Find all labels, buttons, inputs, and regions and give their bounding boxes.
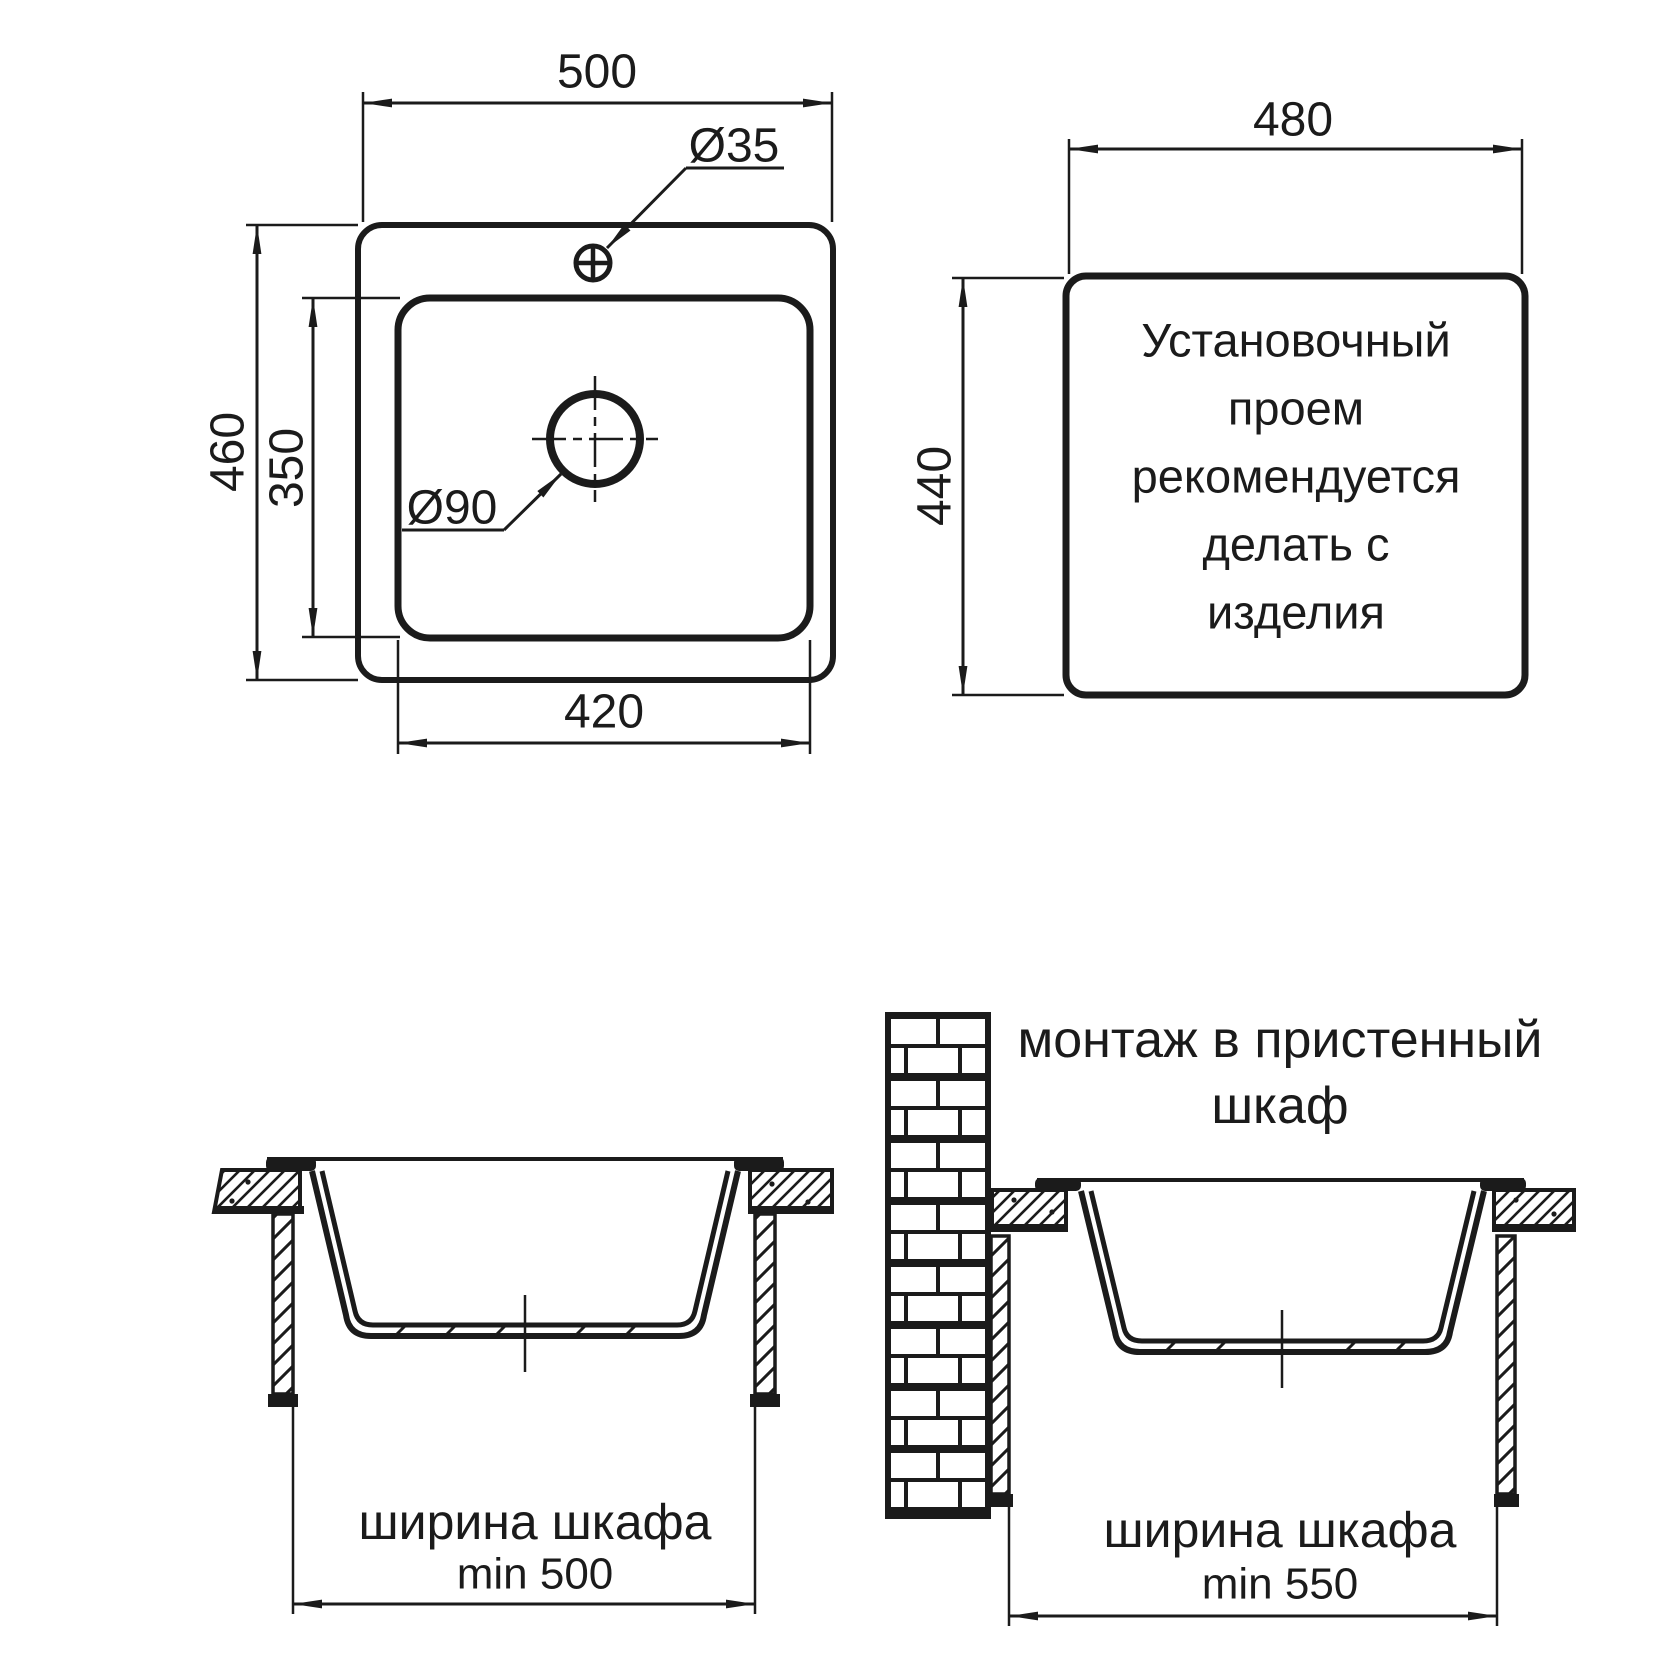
background (0, 0, 1680, 1680)
cabinet-min-width-label: min 500 (457, 1550, 614, 1599)
cutout-note-line-1: Установочный (1141, 314, 1450, 367)
cabinet-panel-left (273, 1214, 293, 1394)
drawing-canvas: Ø35 Ø90 500 460 350 420 480 (0, 0, 1680, 1680)
wall-cabinet-panel-right-cap (1494, 1494, 1519, 1507)
cabinet-panel-left-cap (268, 1394, 298, 1407)
section-title-line-2: шкаф (1211, 1077, 1348, 1135)
faucet-hole-label: Ø35 (689, 120, 780, 173)
dim-350-label: 350 (261, 428, 314, 508)
dim-420-label: 420 (564, 686, 644, 739)
cutout-note-line-3: рекомендуется (1132, 450, 1461, 503)
sink-installation-drawing: Ø35 Ø90 500 460 350 420 480 (0, 0, 1680, 1680)
wall-cabinet-width-label: ширина шкафа (1104, 1502, 1457, 1558)
wall-sink-rim-lip-right (1480, 1178, 1526, 1191)
cutout-note-line-2: проем (1228, 382, 1364, 435)
wall-cabinet-min-width-label: min 550 (1202, 1560, 1359, 1609)
cutout-note-line-4: делать с (1202, 518, 1389, 571)
drain-hole-label: Ø90 (407, 482, 498, 535)
dim-500-label: 500 (557, 46, 637, 99)
brick-wall (888, 1015, 988, 1516)
countertop-right (750, 1170, 832, 1212)
wall-cabinet-panel-left (991, 1236, 1009, 1494)
section-title-line-1: монтаж в пристенный (1018, 1011, 1543, 1069)
cutout-note-line-5: изделия (1207, 586, 1385, 639)
sink-rim-lip-right (734, 1157, 784, 1171)
cabinet-panel-right (755, 1214, 775, 1394)
dim-440-label: 440 (909, 446, 962, 526)
dim-460-label: 460 (202, 412, 255, 492)
wall-cabinet-panel-left-cap (988, 1494, 1013, 1507)
wall-sink-rim-lip-left (1035, 1178, 1081, 1191)
cabinet-panel-right-cap (750, 1394, 780, 1407)
wall-cabinet-panel-right (1497, 1236, 1515, 1494)
countertop-left (214, 1170, 300, 1212)
cabinet-width-label: ширина шкафа (359, 1494, 712, 1550)
sink-rim-lip-left (266, 1157, 316, 1171)
dim-480-label: 480 (1253, 94, 1333, 147)
